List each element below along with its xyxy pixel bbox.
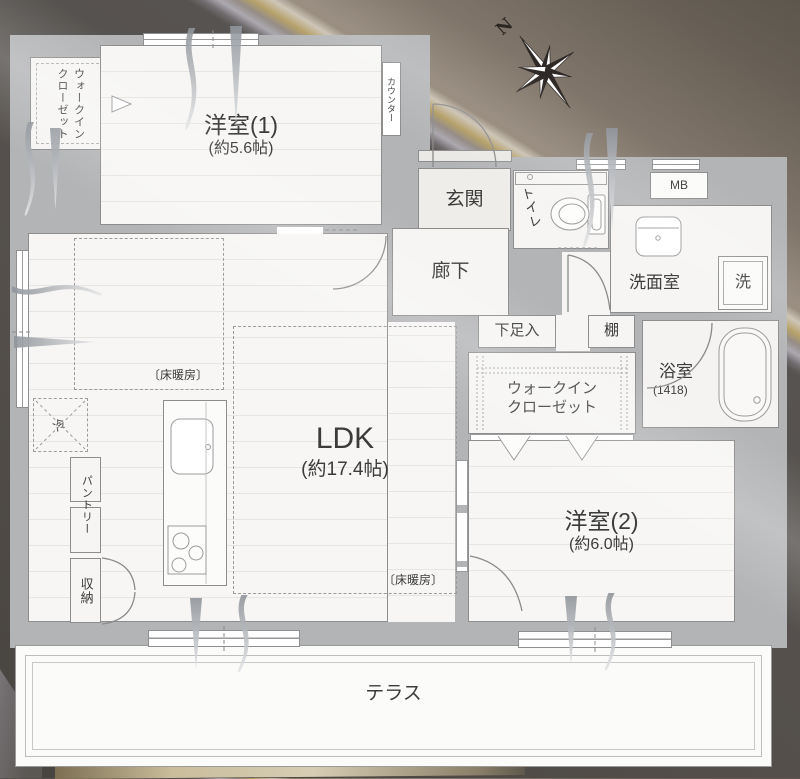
hallway-passage: [562, 252, 610, 316]
terrace: テラス: [15, 645, 772, 767]
ldk-size: (約17.4帖): [255, 458, 435, 482]
counter: カウンター: [382, 62, 401, 136]
fridge-space: 冷: [33, 398, 88, 452]
toilet-room: トイレ: [513, 170, 609, 249]
bedroom-1-size: (約5.6帖): [209, 139, 274, 159]
bedroom-1-name: 洋室(1): [204, 111, 278, 140]
toilet-shelf: [515, 172, 607, 185]
meter-box-label: MB: [670, 178, 688, 193]
window-bedroom1-top: [143, 33, 259, 46]
entrance-porch: [418, 150, 512, 162]
walkin-closet-1-label: ウォークイン クローゼット: [54, 68, 87, 140]
ldk-name: LDK: [255, 420, 435, 458]
compass-north-label: N: [492, 14, 517, 39]
washroom-label: 洗面室: [629, 272, 680, 293]
floor-heating-2-label: 〔床暖房〕: [383, 573, 443, 588]
hallway-label: 廊下: [431, 260, 469, 284]
walkin-closet-1: ウォークイン クローゼット: [30, 57, 110, 150]
fridge-label: 冷: [51, 415, 69, 434]
washing-machine-inner: [723, 261, 763, 305]
bathroom-size: (1418): [653, 383, 688, 398]
meter-box: MB: [650, 172, 708, 199]
walkin-closet-2-line2: クローゼット: [507, 399, 597, 418]
bedroom-2-size: (約6.0帖): [569, 535, 634, 555]
counter-label: カウンター: [385, 77, 398, 122]
bathroom: 浴室 (1418): [642, 320, 779, 428]
window-ldk-terrace: [148, 630, 300, 647]
shelf-label: 棚: [604, 322, 619, 341]
kitchen-island: [163, 400, 227, 586]
pantry-label: パントリー: [79, 475, 93, 535]
hallway: 廊下: [392, 228, 509, 316]
bathroom-name: 浴室: [659, 361, 693, 382]
bedroom-2: 洋室(2) (約6.0帖): [468, 440, 735, 622]
terrace-inner-border-2: [32, 662, 755, 750]
shelf: 棚: [588, 315, 635, 348]
window-washroom-top: [652, 159, 700, 170]
bedroom-1: 洋室(1) (約5.6帖): [100, 45, 382, 225]
genkan-label: 玄関: [445, 188, 483, 212]
walkin-closet-2: ウォークイン クローゼット: [468, 352, 636, 434]
shoe-cabinet-label: 下足入: [494, 322, 539, 341]
washing-machine: 洗: [718, 256, 768, 310]
shoe-cabinet: 下足入: [478, 315, 556, 348]
window-toilet-top: [576, 159, 626, 170]
sliding-door: [456, 460, 468, 572]
ldk-label-group: LDK (約17.4帖): [255, 420, 435, 481]
sliding-door-bedroom1: [277, 227, 323, 234]
terrace-label: テラス: [16, 682, 771, 706]
window-ldk-left: [16, 250, 29, 408]
toilet-label: トイレ: [517, 186, 544, 231]
floor-heating-1-label: 〔床暖房〕: [148, 368, 208, 383]
storage-label: 収納: [77, 577, 93, 605]
bedroom-2-name: 洋室(2): [564, 507, 638, 536]
pantry-label-box: パントリー: [70, 457, 101, 553]
closet-passage: [556, 315, 590, 351]
entrance-genkan: 玄関: [418, 168, 511, 231]
walkin-closet-2-line1: ウォークイン: [507, 380, 597, 399]
storage: 収納: [70, 558, 101, 623]
window-bedroom2-terrace: [518, 631, 672, 648]
floorplan-page: { "background": { "dark": "#55504b", "ba…: [0, 0, 800, 778]
